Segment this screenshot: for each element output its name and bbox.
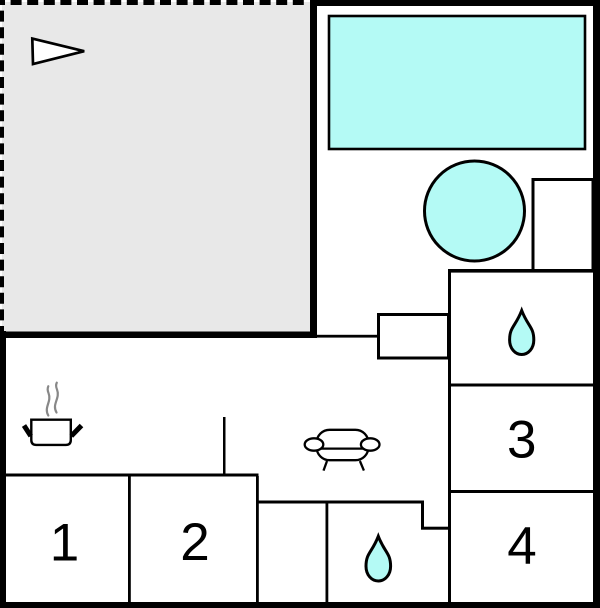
svg-text:1: 1 bbox=[50, 514, 79, 573]
svg-text:2: 2 bbox=[180, 513, 209, 572]
svg-text:3: 3 bbox=[507, 411, 536, 470]
svg-text:4: 4 bbox=[507, 517, 536, 576]
